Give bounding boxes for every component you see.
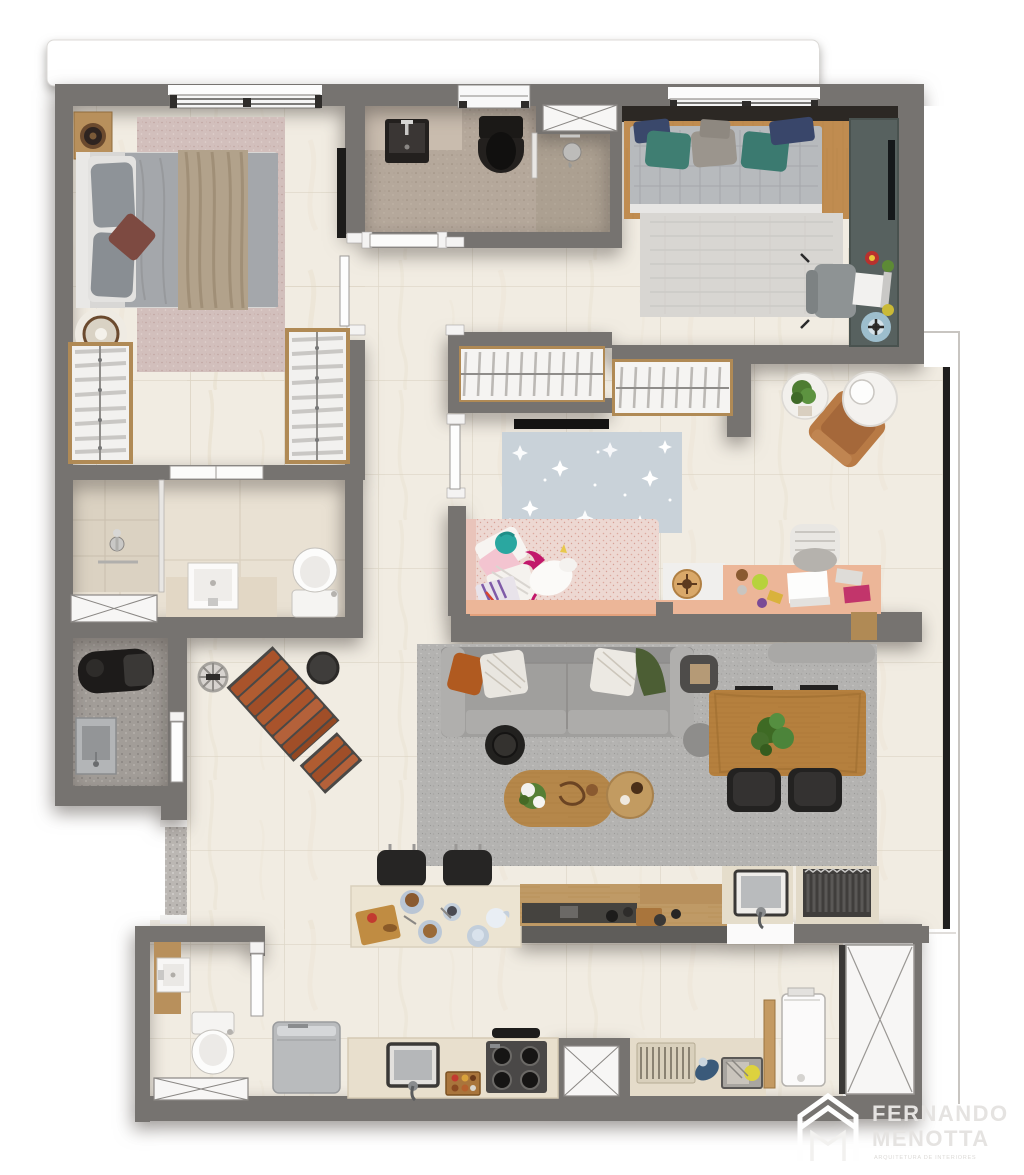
svg-text:MENOTTA: MENOTTA <box>872 1126 990 1151</box>
svg-text:ARQUITETURA DE INTERIORES: ARQUITETURA DE INTERIORES <box>874 1155 976 1161</box>
svg-text:FERNANDO: FERNANDO <box>872 1101 1009 1126</box>
